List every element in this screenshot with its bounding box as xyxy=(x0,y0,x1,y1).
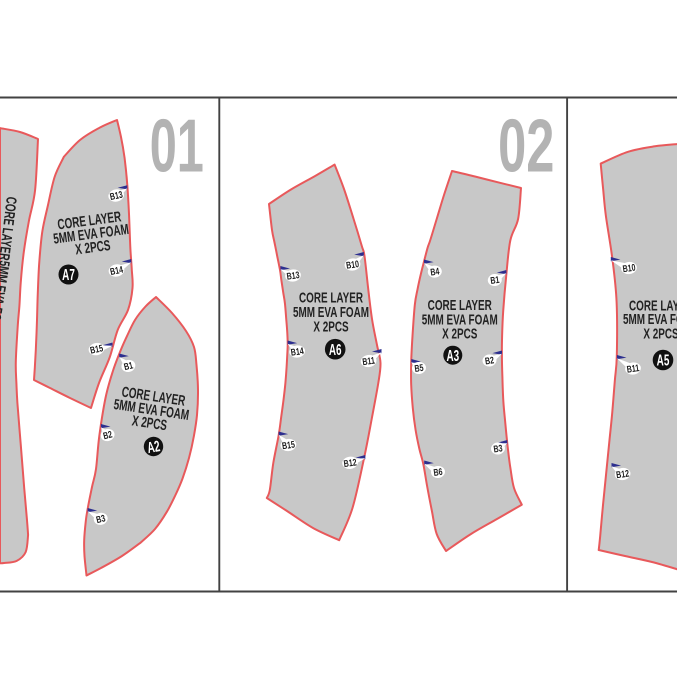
svg-text:B6: B6 xyxy=(433,466,444,479)
svg-text:B4: B4 xyxy=(430,265,441,278)
svg-text:B2: B2 xyxy=(484,354,495,367)
svg-text:B10: B10 xyxy=(622,261,637,274)
svg-text:A6: A6 xyxy=(329,341,342,359)
svg-text:B1: B1 xyxy=(490,274,501,287)
svg-text:A3: A3 xyxy=(446,347,459,365)
svg-text:B13: B13 xyxy=(286,269,301,282)
svg-text:B10: B10 xyxy=(345,258,360,271)
svg-text:B3: B3 xyxy=(493,442,504,455)
svg-text:X 2PCS: X 2PCS xyxy=(442,326,477,342)
svg-text:02: 02 xyxy=(498,103,554,188)
svg-text:B15: B15 xyxy=(281,438,296,451)
svg-text:B5: B5 xyxy=(414,362,425,375)
svg-text:A5: A5 xyxy=(657,351,670,369)
svg-text:B12: B12 xyxy=(343,456,358,469)
svg-text:B12: B12 xyxy=(615,467,630,480)
svg-text:B11: B11 xyxy=(626,362,640,375)
svg-text:B14: B14 xyxy=(290,345,305,358)
svg-text:A7: A7 xyxy=(62,266,75,284)
svg-text:X 2PCS: X 2PCS xyxy=(313,319,348,335)
svg-text:01: 01 xyxy=(150,104,204,188)
svg-text:X 2PCS: X 2PCS xyxy=(643,326,677,342)
svg-text:B11: B11 xyxy=(362,354,376,367)
